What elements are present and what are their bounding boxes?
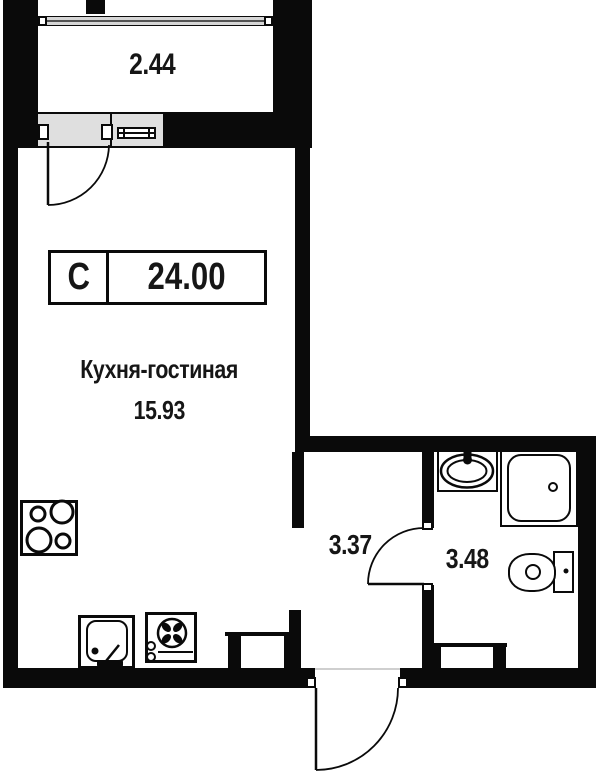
entrance-door-swing-arc	[316, 688, 398, 770]
toilet-tank	[553, 551, 574, 593]
wall-bath-divider-upper	[422, 452, 434, 528]
balcony-glazing-cap-left	[38, 16, 47, 26]
unit-total-area-value: 24.00	[148, 256, 226, 299]
radiator-bathroom	[428, 643, 507, 668]
unit-area-badge: С 24.00	[48, 250, 267, 305]
wall-balcony-left	[3, 0, 38, 148]
radiator-bathroom-leg-left	[428, 647, 441, 669]
unit-type-value: С	[67, 256, 90, 299]
balcony-glazing-midline	[39, 20, 272, 22]
balcony-window-glazing-cap-left	[123, 129, 125, 137]
radiator-bathroom-leg-right	[493, 647, 506, 669]
radiator-living-leg-left	[228, 636, 241, 668]
unit-type-cell: С	[51, 253, 109, 302]
balcony-door-jamb-right	[101, 124, 113, 140]
floor-plan: 2.44 С 24.00 Кухня-гостиная 15.93 3.37 3…	[0, 0, 600, 776]
entrance-threshold	[315, 668, 400, 670]
entrance-door-jamb-left	[306, 677, 316, 688]
wall-bottom-right	[400, 668, 596, 688]
wall-left-outer	[3, 148, 18, 688]
wall-under-balcony	[163, 112, 273, 148]
washing-machine	[145, 612, 197, 663]
kitchen-living-name-label: Кухня-гостиная	[28, 354, 290, 385]
wall-right-main	[295, 148, 310, 436]
kitchen-living-name-value: Кухня-гостиная	[80, 354, 238, 385]
hallway-area-label: 3.37	[305, 529, 395, 561]
bathroom-door-jamb-top	[422, 521, 433, 530]
unit-total-area-cell: 24.00	[109, 256, 264, 299]
balcony-window-glazing-cap-right	[148, 129, 150, 137]
bathroom-area-value: 3.48	[445, 543, 488, 575]
stove	[20, 500, 78, 556]
bathroom-door-jamb-bottom	[422, 583, 433, 592]
toilet-bowl-center	[525, 564, 541, 580]
wall-right-outer	[578, 452, 596, 688]
balcony-door-jamb-left	[38, 124, 49, 140]
kitchen-sink-basin	[86, 620, 128, 662]
balcony-door-swing-arc	[48, 145, 109, 205]
kitchen-living-area-value: 15.93	[133, 395, 184, 426]
entrance-door-jamb-right	[398, 677, 408, 688]
balcony-area-value: 2.44	[129, 48, 175, 82]
kitchen-living-area-label: 15.93	[28, 395, 290, 426]
wall-top-pier	[86, 0, 105, 14]
balcony-glazing-cap-right	[264, 16, 273, 26]
balcony-window-glazing	[117, 127, 156, 139]
balcony-area-label: 2.44	[95, 48, 210, 82]
shower-tray-inner	[507, 454, 571, 522]
wall-balcony-right	[273, 0, 312, 148]
radiator-living	[225, 632, 297, 668]
washbasin	[437, 450, 498, 492]
balcony-glazing-band	[38, 16, 273, 26]
wall-bottom-left	[3, 668, 315, 688]
bathroom-area-label: 3.48	[424, 543, 510, 575]
radiator-living-leg-right	[284, 636, 296, 668]
hallway-area-value: 3.37	[328, 529, 371, 561]
wall-passage-upper	[292, 452, 304, 528]
